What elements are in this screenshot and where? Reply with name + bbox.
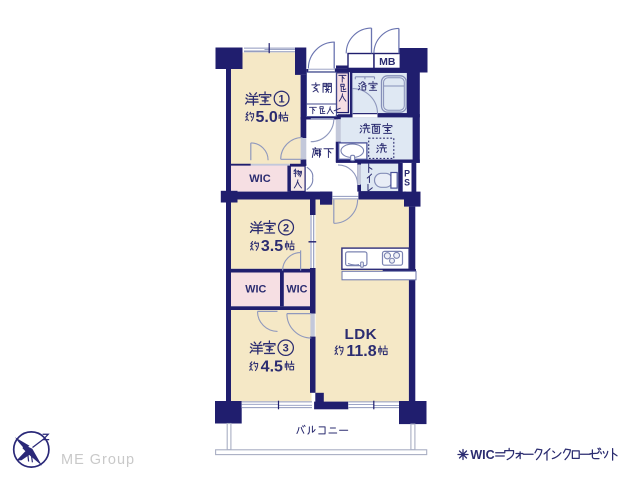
svg-text:WIC: WIC <box>245 283 266 295</box>
svg-text:5.0: 5.0 <box>255 109 277 126</box>
svg-text:2: 2 <box>283 222 289 234</box>
svg-text:4.5: 4.5 <box>261 358 283 375</box>
svg-text:3.5: 3.5 <box>261 238 283 255</box>
svg-text:WIC: WIC <box>470 448 494 462</box>
svg-text:LDK: LDK <box>344 326 377 343</box>
svg-text:1: 1 <box>279 94 285 106</box>
svg-text:3: 3 <box>283 343 289 355</box>
svg-text:WIC: WIC <box>249 173 270 185</box>
svg-text:11.8: 11.8 <box>346 343 376 360</box>
svg-text:S: S <box>404 177 410 187</box>
svg-text:MB: MB <box>379 56 396 68</box>
svg-text:WIC: WIC <box>286 283 307 295</box>
svg-text:ME Group: ME Group <box>61 452 135 468</box>
